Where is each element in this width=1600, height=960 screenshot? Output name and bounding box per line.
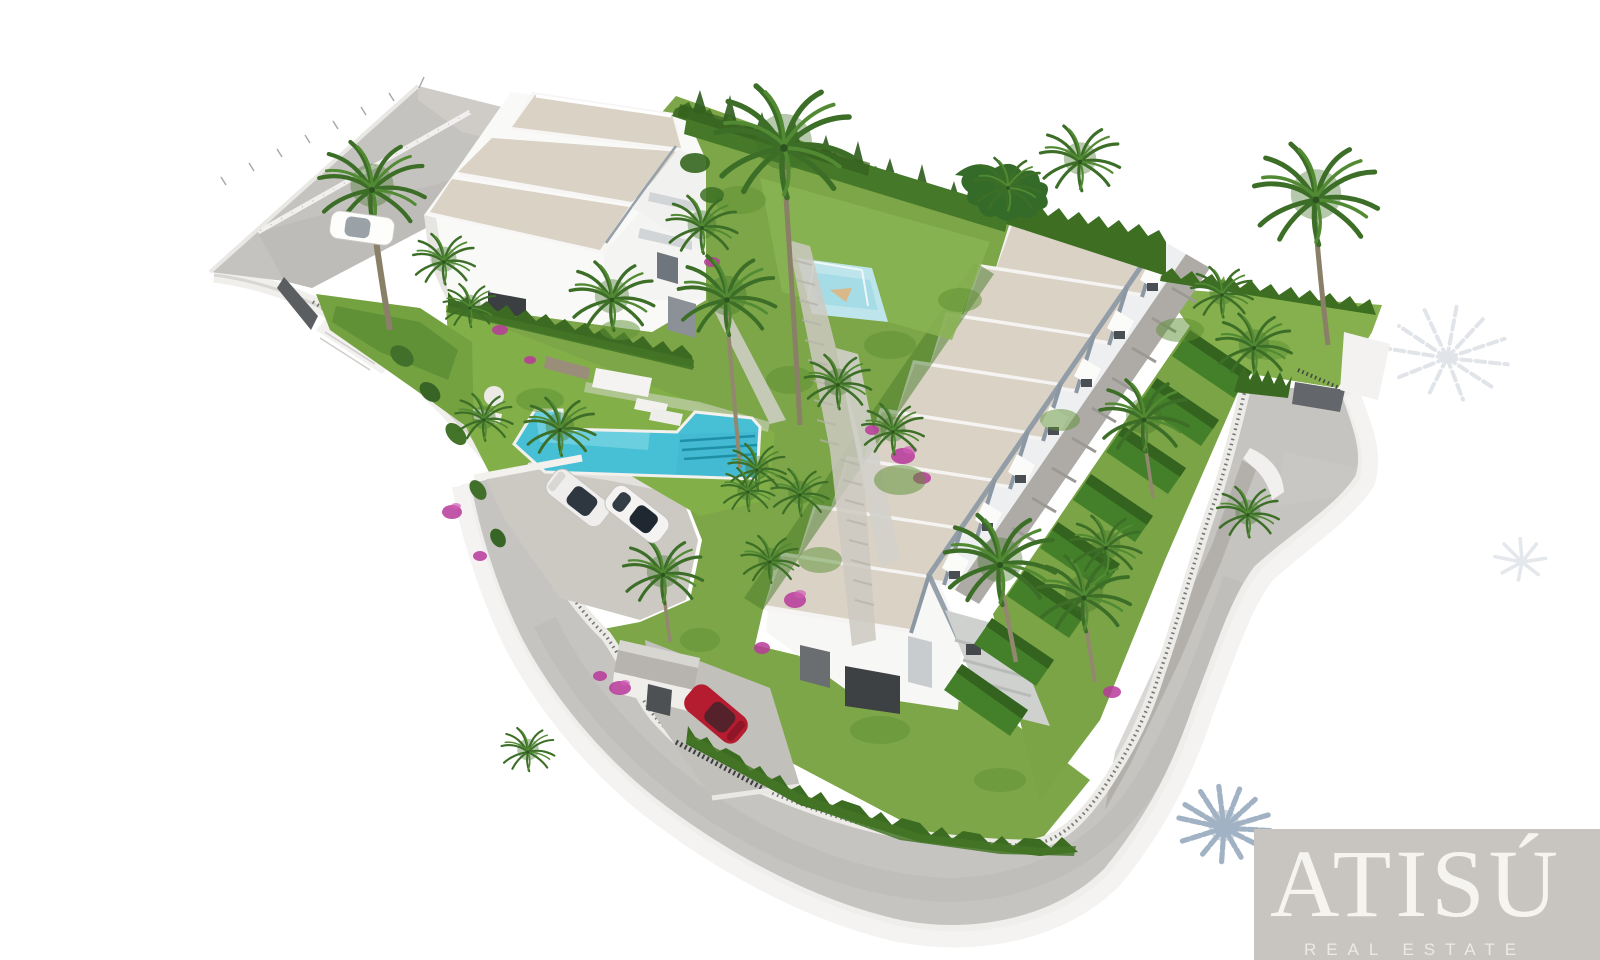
svg-text:REAL ESTATE: REAL ESTATE bbox=[1304, 940, 1526, 959]
svg-text:ATISÚ: ATISÚ bbox=[1270, 830, 1562, 937]
